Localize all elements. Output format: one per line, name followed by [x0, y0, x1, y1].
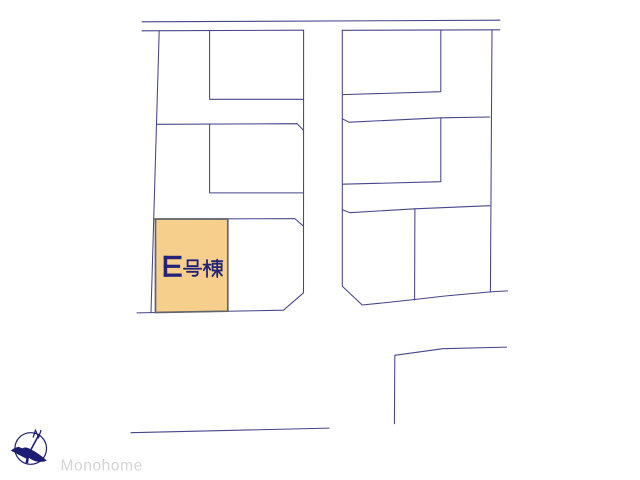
svg-text:Monohome: Monohome: [61, 457, 143, 474]
